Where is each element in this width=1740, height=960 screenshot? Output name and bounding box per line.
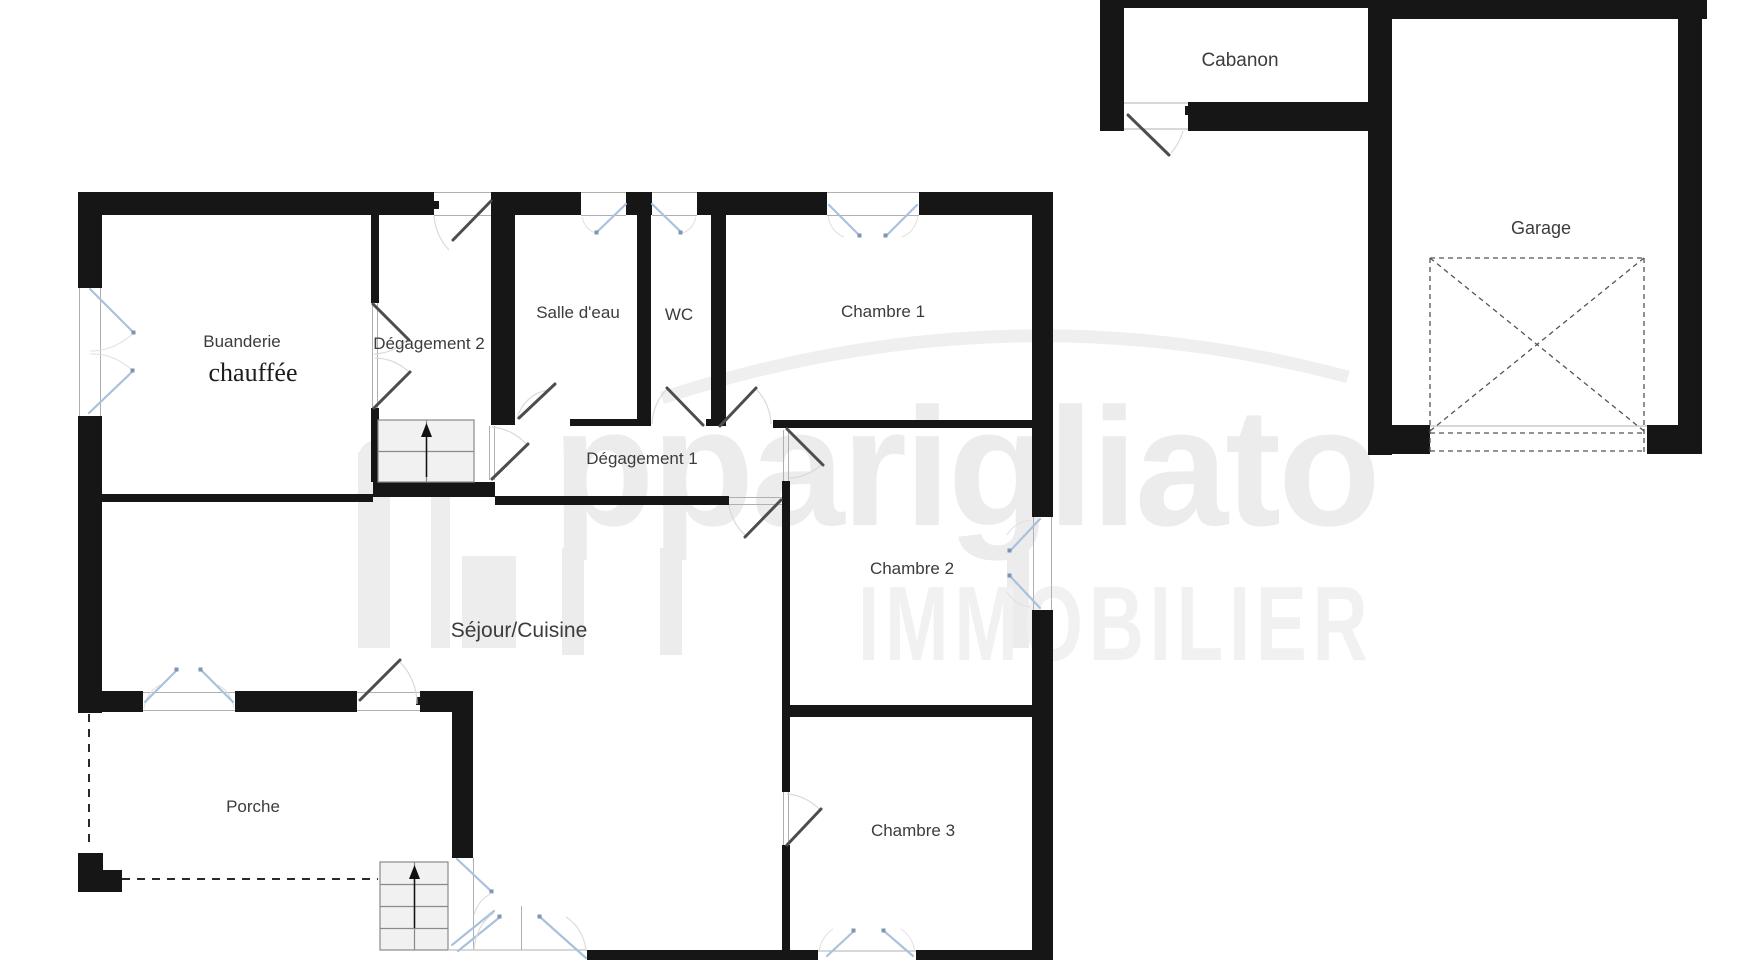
svg-text:Séjour/Cuisine: Séjour/Cuisine xyxy=(451,619,588,642)
svg-text:WC: WC xyxy=(665,305,693,324)
svg-text:IMMOBILIER: IMMOBILIER xyxy=(858,564,1373,683)
svg-text:Chambre 1: Chambre 1 xyxy=(841,302,925,321)
svg-text:Dégagement 2: Dégagement 2 xyxy=(373,334,485,353)
svg-text:Chambre 3: Chambre 3 xyxy=(871,821,955,840)
svg-text:Porche: Porche xyxy=(226,797,280,816)
svg-text:Buanderie: Buanderie xyxy=(203,332,281,351)
svg-text:Dégagement 1: Dégagement 1 xyxy=(586,449,698,468)
svg-text:Salle d'eau: Salle d'eau xyxy=(536,303,620,322)
svg-text:Garage: Garage xyxy=(1511,218,1571,238)
svg-text:Cabanon: Cabanon xyxy=(1201,50,1278,71)
svg-text:chauffée: chauffée xyxy=(208,358,297,387)
svg-text:Chambre 2: Chambre 2 xyxy=(870,559,954,578)
